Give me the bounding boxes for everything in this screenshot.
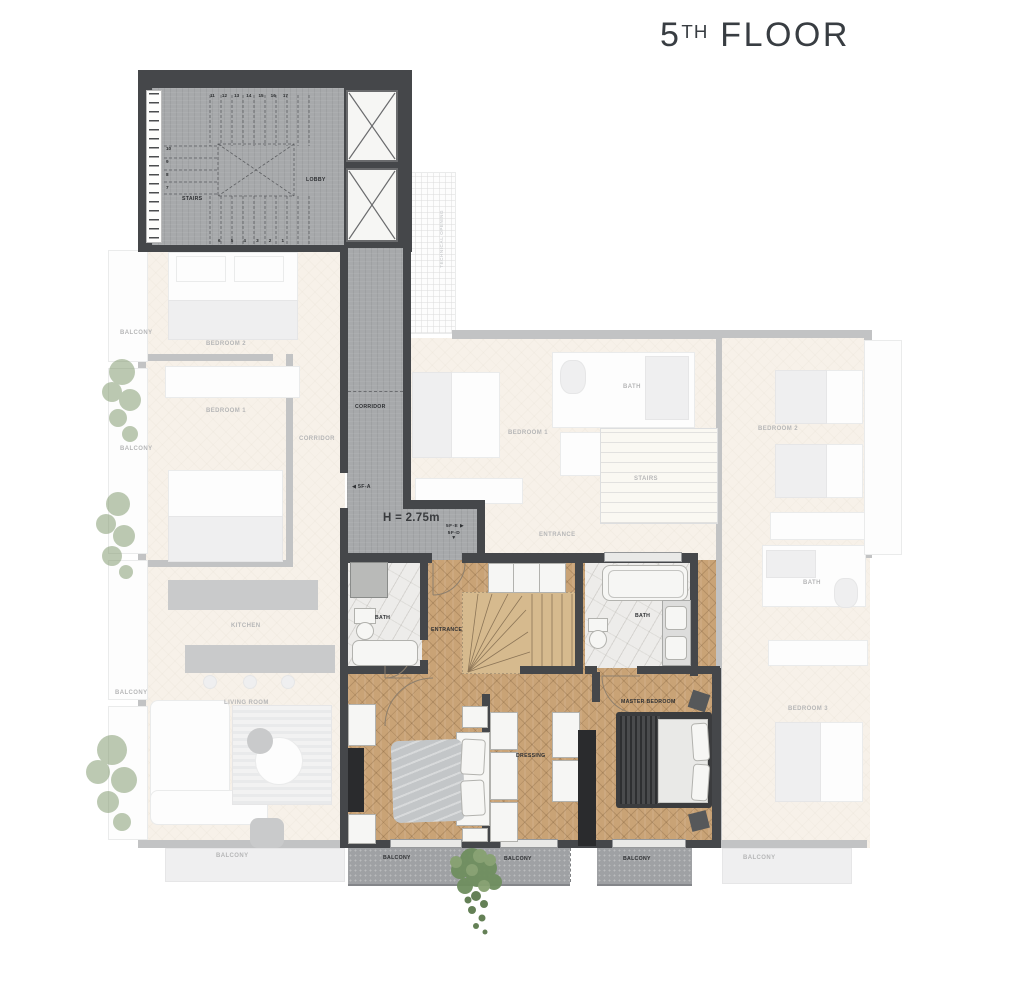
rug (232, 705, 332, 805)
balcony (864, 340, 902, 555)
technical-shaft (408, 172, 456, 334)
wall (286, 354, 293, 560)
entrance-label: ENTRANCE (431, 627, 462, 633)
wall (575, 560, 583, 674)
bath-right-label: BATH (635, 613, 650, 619)
wall (340, 666, 426, 674)
bed (168, 252, 298, 340)
toilet (560, 360, 586, 394)
step-numbers-top: 11121314151617 (210, 93, 288, 98)
wall (145, 840, 350, 848)
lobby-label: LOBBY (306, 177, 326, 183)
unit-marker-5f-d: 5F-D▼ (443, 531, 465, 540)
window (604, 552, 682, 562)
shower (350, 562, 388, 598)
nightstand (462, 828, 488, 842)
wall (592, 672, 600, 702)
floor-word: FLOOR (720, 16, 850, 54)
wall (452, 330, 872, 339)
bed-blanket (168, 300, 298, 340)
wall (403, 500, 485, 509)
sofa (150, 790, 268, 825)
dimension-ticks (146, 90, 162, 243)
bed (775, 444, 863, 498)
corridor-label: CORRIDOR (355, 404, 386, 410)
window (390, 839, 462, 848)
bathtub (352, 640, 418, 666)
plant (78, 728, 148, 838)
unit-marker-5f-a: ◀ 5F-A (352, 484, 371, 490)
nightstand (462, 706, 488, 728)
wardrobe (552, 760, 580, 802)
room-label: CORRIDOR (299, 436, 335, 442)
room-label: BALCONY (115, 690, 147, 696)
plant (90, 486, 144, 582)
wardrobe (165, 366, 300, 398)
dressing-label: DRESSING (516, 753, 546, 759)
bed-blanket (412, 372, 452, 458)
room-label: BEDROOM 3 (788, 706, 828, 712)
balcony-divider (570, 848, 571, 882)
toilet (356, 622, 374, 640)
balcony (108, 560, 148, 700)
wall (420, 560, 428, 640)
sink (665, 606, 687, 630)
balcony (452, 848, 570, 886)
balcony-label: BALCONY (383, 855, 411, 861)
stool (281, 675, 295, 689)
floor-ordinal: TH (681, 21, 708, 42)
room-label: BALCONY (120, 330, 152, 336)
plant (96, 352, 150, 448)
wall (864, 330, 872, 558)
balcony-label: BALCONY (623, 856, 651, 862)
wall (145, 354, 273, 361)
master-bedroom-label: MASTER BEDROOM (621, 699, 676, 705)
bed-duvet (391, 739, 466, 823)
technical-label: TECHNICAL OPENING (440, 210, 445, 268)
wall (690, 560, 698, 676)
wall (138, 250, 146, 848)
ceiling-height-note: H = 2.75m (383, 512, 440, 524)
balcony (108, 250, 148, 362)
wall (145, 560, 293, 567)
balcony (722, 848, 852, 884)
wardrobe (490, 802, 518, 842)
bed (775, 370, 863, 424)
balcony (348, 848, 452, 886)
sink (665, 636, 687, 660)
room-label: BEDROOM 1 (508, 430, 548, 436)
balcony (597, 848, 692, 886)
bed-throw (620, 716, 660, 804)
wall (340, 248, 348, 473)
pillow (460, 738, 486, 775)
balcony (165, 848, 345, 882)
room-label: ENTRANCE (539, 532, 576, 538)
room-label: BALCONY (216, 853, 248, 859)
wardrobe (768, 640, 868, 666)
elevator (346, 168, 398, 242)
pillow (691, 722, 711, 761)
wall (712, 668, 721, 848)
coffee-table (255, 737, 303, 785)
bed-blanket (775, 370, 827, 424)
room-label: BALCONY (743, 855, 775, 861)
bed (168, 470, 283, 562)
floor-number: 5 (660, 16, 681, 54)
room-label: STAIRS (634, 476, 658, 482)
stairs (600, 428, 718, 524)
balcony (108, 368, 148, 554)
balcony (108, 706, 148, 840)
side-table (247, 728, 273, 754)
room-label: BEDROOM 1 (206, 408, 246, 414)
kitchen-counter (168, 580, 318, 610)
stool (243, 675, 257, 689)
left-unit-floor (145, 250, 345, 848)
tv-unit (348, 748, 364, 812)
page-title: 5TH FLOOR (660, 16, 850, 55)
bed-blanket (168, 516, 283, 562)
wall (520, 666, 583, 674)
wardrobe (490, 712, 518, 750)
pillow (176, 256, 226, 282)
room-label: KITCHEN (231, 623, 260, 629)
bath-left-label: BATH (375, 615, 390, 621)
closet (560, 432, 638, 476)
tv-unit (578, 730, 596, 846)
right-unit-floor (722, 338, 870, 848)
pillow (234, 256, 284, 282)
entry-closet (488, 563, 566, 593)
bed-blanket (775, 722, 821, 802)
core-floor (152, 88, 344, 245)
bath-floor (762, 545, 866, 607)
pillow (460, 779, 486, 816)
stairs-label: STAIRS (182, 196, 202, 202)
wall (722, 840, 867, 848)
stool (203, 675, 217, 689)
closet-divider (539, 563, 540, 593)
bed (412, 372, 500, 458)
room-label: BATH (623, 384, 641, 390)
bathtub-inner (608, 570, 684, 598)
bed-blanket (775, 444, 827, 498)
room-label: BATH (803, 580, 821, 586)
corridor-floor (347, 248, 405, 510)
wall (403, 248, 411, 508)
wardrobe (348, 814, 376, 844)
toilet (589, 630, 607, 649)
floor-plan-page: 5TH FLOOR BALCONY (0, 0, 1024, 987)
step-numbers-bottom: 654321 (218, 238, 284, 243)
unit-marker-5f-e: 5F-E ▶ (446, 524, 464, 529)
wardrobe (348, 704, 376, 746)
balcony-label: BALCONY (504, 856, 532, 862)
closet-divider (513, 563, 514, 593)
toilet (834, 578, 858, 608)
kitchen-island (185, 645, 335, 673)
room-label: BEDROOM 2 (206, 341, 246, 347)
step-numbers-left: 10987 (166, 146, 171, 190)
pillow (691, 763, 711, 801)
wardrobe (552, 712, 580, 758)
bath-floor (552, 352, 695, 428)
window (612, 839, 686, 848)
room-label: BALCONY (120, 446, 152, 452)
sink-counter (766, 550, 816, 578)
bed (775, 722, 863, 802)
sofa (150, 700, 230, 825)
pouf (250, 818, 284, 848)
room-label: BEDROOM 2 (758, 426, 798, 432)
room-label: LIVING ROOM (224, 700, 269, 706)
wardrobe (490, 752, 518, 800)
threshold-line (348, 391, 403, 392)
wall (462, 553, 580, 563)
wall (637, 666, 720, 674)
wardrobe (770, 512, 866, 540)
elevator (346, 90, 398, 162)
bathtub (645, 356, 689, 420)
